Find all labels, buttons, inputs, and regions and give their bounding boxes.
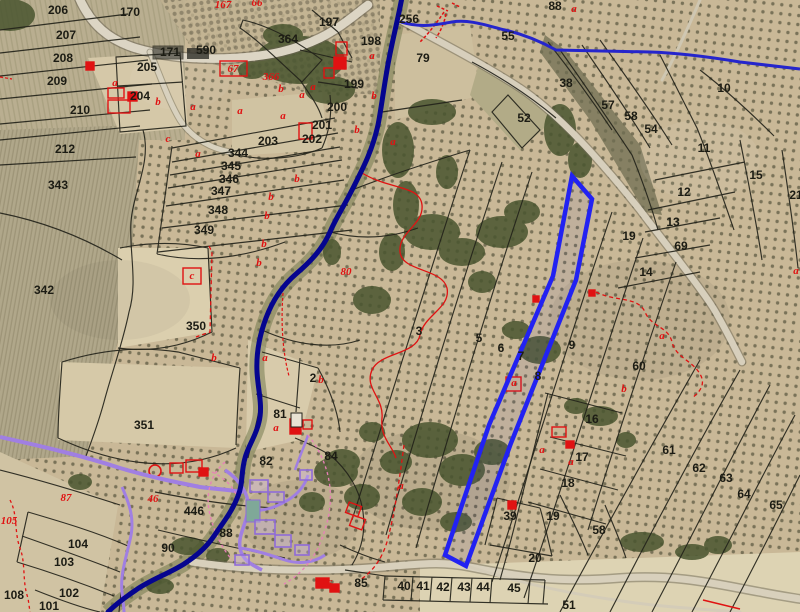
parcel-label-366: 366 <box>262 71 280 83</box>
parcel-label-202: 202 <box>302 132 322 146</box>
parcel-label-64: 64 <box>737 487 751 501</box>
parcel-label-101: 101 <box>39 599 59 612</box>
parcel-label-b: b <box>354 124 360 136</box>
parcel-label-b: b <box>268 191 274 203</box>
parcel-label-b: b <box>294 173 300 185</box>
parcel-label-343: 343 <box>48 178 68 192</box>
parcel-label-11: 11 <box>698 141 711 155</box>
parcel-label-a: a <box>793 265 799 277</box>
parcel-label-21: 21 <box>789 188 800 202</box>
parcel-label-6: 6 <box>498 341 505 355</box>
parcel-label-167: 167 <box>215 0 232 11</box>
parcel-label-b: b <box>264 210 270 222</box>
parcel-label-12: 12 <box>677 185 691 199</box>
parcel-label-a: a <box>273 422 279 434</box>
building-icon <box>566 441 574 448</box>
parcel-label-344: 344 <box>228 146 248 160</box>
parcel-label-39: 39 <box>503 509 517 523</box>
parcel-label-80: 80 <box>341 266 353 278</box>
parcel-label-40: 40 <box>397 579 411 593</box>
parcel-label-43: 43 <box>457 580 471 594</box>
parcel-label-203: 203 <box>258 134 278 148</box>
parcel-label-63: 63 <box>719 471 733 485</box>
parcel-label-a: a <box>539 444 545 456</box>
parcel-label-17: 17 <box>575 450 589 464</box>
parcel-label-84: 84 <box>324 449 338 463</box>
parcel-label-b: b <box>278 83 284 95</box>
parcel-label-a: a <box>310 81 316 93</box>
parcel-label-15: 15 <box>749 168 763 182</box>
parcel-label-42: 42 <box>436 580 450 594</box>
building-icon <box>533 296 539 302</box>
parcel-label-b: b <box>371 90 377 102</box>
parcel-label-16: 16 <box>585 412 599 426</box>
parcel-label-81: 81 <box>273 407 287 421</box>
parcel-label-a: a <box>112 77 118 89</box>
building-icon <box>86 62 94 70</box>
parcel-label-90: 90 <box>161 541 175 555</box>
parcel-label-58: 58 <box>624 109 638 123</box>
parcel-label-38: 38 <box>559 76 573 90</box>
parcel-label-364: 364 <box>278 32 298 46</box>
parcel-label-18: 18 <box>561 476 575 490</box>
parcel-label-41: 41 <box>416 579 430 593</box>
parcel-label-345: 345 <box>221 159 241 173</box>
parcel-label-69: 69 <box>674 239 688 253</box>
parcel-label-256: 256 <box>399 12 419 26</box>
parcel-label-206: 206 <box>48 3 68 17</box>
parcel-label-205: 205 <box>137 60 157 74</box>
parcel-label-87: 87 <box>61 492 73 504</box>
parcel-label-b: b <box>261 238 267 250</box>
parcel-label-349: 349 <box>194 223 214 237</box>
parcel-label-7: 7 <box>518 349 525 363</box>
map-canvas[interactable]: 1702062072082092101715902052042032022012… <box>0 0 800 612</box>
parcel-label-b: b <box>211 352 217 364</box>
parcel-label-a: a <box>195 148 201 160</box>
parcel-label-171: 171 <box>160 45 180 59</box>
parcel-label-a: a <box>571 3 577 15</box>
parcel-label-348: 348 <box>208 203 228 217</box>
parcel-label-170: 170 <box>120 5 140 19</box>
parcel-label-210: 210 <box>70 103 90 117</box>
parcel-label-58: 58 <box>592 523 606 537</box>
parcel-label-347: 347 <box>211 184 231 198</box>
parcel-label-67: 67 <box>228 63 240 75</box>
parcel-label-209: 209 <box>47 74 67 88</box>
parcel-label-88: 88 <box>548 0 562 13</box>
parcel-label-198: 198 <box>361 34 381 48</box>
cadastral-map-view[interactable]: 1702062072082092101715902052042032022012… <box>0 0 800 612</box>
parcel-label-9: 9 <box>569 338 576 352</box>
parcel-label-a: a <box>398 480 404 492</box>
parcel-label-204: 204 <box>130 89 150 103</box>
parcel-label-a: a <box>237 105 243 117</box>
parcel-label-55: 55 <box>501 29 515 43</box>
parcel-label-44: 44 <box>476 580 490 594</box>
parcel-label-54: 54 <box>644 122 658 136</box>
parcel-label-342: 342 <box>34 283 54 297</box>
parcel-label-19: 19 <box>546 509 560 523</box>
parcel-label-207: 207 <box>56 28 76 42</box>
parcel-label-85: 85 <box>354 576 368 590</box>
parcel-label-a: a <box>568 456 574 468</box>
parcel-label-102: 102 <box>59 586 79 600</box>
parcel-label-65: 65 <box>769 498 783 512</box>
parcel-label-c: c <box>190 270 195 282</box>
parcel-label-a: a <box>369 50 375 62</box>
parcel-label-197: 197 <box>319 15 339 29</box>
parcel-label-19: 19 <box>622 229 636 243</box>
parcel-label-a: a <box>299 89 305 101</box>
building-icon <box>334 57 346 69</box>
parcel-label-66: 66 <box>252 0 264 9</box>
parcel-label-212: 212 <box>55 142 75 156</box>
parcel-label-590: 590 <box>196 43 216 57</box>
parcel-label-61: 61 <box>662 443 676 457</box>
parcel-label-2: 2 <box>310 371 317 385</box>
parcel-label-103: 103 <box>54 555 74 569</box>
parcel-label-366: 366 <box>315 578 333 590</box>
parcel-label-a: a <box>280 110 286 122</box>
parcel-label-79: 79 <box>416 51 430 65</box>
parcel-label-46: 46 <box>147 493 160 505</box>
parcel-label-5: 5 <box>476 331 483 345</box>
parcel-label-104: 104 <box>68 537 88 551</box>
parcel-label-446: 446 <box>184 504 204 518</box>
parcel-label-62: 62 <box>692 461 706 475</box>
parcel-label-201: 201 <box>312 118 332 132</box>
parcel-label-105: 105 <box>1 515 18 527</box>
parcel-label-14: 14 <box>639 265 653 279</box>
parcel-label-b: b <box>155 96 161 108</box>
parcel-label-8: 8 <box>535 369 542 383</box>
parcel-label-350: 350 <box>186 319 206 333</box>
parcel-label-b: b <box>256 257 262 269</box>
aerial-imagery <box>0 0 800 612</box>
parcel-label-a: a <box>190 101 196 113</box>
parcel-label-c: c <box>166 133 171 145</box>
parcel-label-a: a <box>659 330 665 342</box>
parcel-label-200: 200 <box>327 100 347 114</box>
parcel-label-52: 52 <box>517 111 531 125</box>
parcel-label-a: a <box>511 377 517 389</box>
parcel-label-88: 88 <box>219 526 233 540</box>
parcel-label-45: 45 <box>507 581 521 595</box>
parcel-label-b: b <box>621 383 627 395</box>
parcel-label-57: 57 <box>601 98 615 112</box>
building-white <box>291 413 302 427</box>
parcel-label-51: 51 <box>562 598 576 612</box>
parcel-label-20: 20 <box>528 551 542 565</box>
parcel-label-199: 199 <box>344 77 364 91</box>
parcel-label-a: a <box>390 136 396 148</box>
parcel-label-13: 13 <box>666 215 680 229</box>
building-icon <box>508 501 516 509</box>
parcel-label-a: a <box>262 352 268 364</box>
parcel-label-b: b <box>318 374 324 386</box>
parcel-label-208: 208 <box>53 51 73 65</box>
parcel-label-60: 60 <box>632 359 646 373</box>
building-icon <box>589 290 595 296</box>
parcel-label-10: 10 <box>717 81 731 95</box>
parcel-label-3: 3 <box>416 324 423 338</box>
parcel-label-351: 351 <box>134 418 154 432</box>
parcel-label-108: 108 <box>4 588 24 602</box>
parcel-label-82: 82 <box>259 454 273 468</box>
building-icon <box>199 468 208 476</box>
